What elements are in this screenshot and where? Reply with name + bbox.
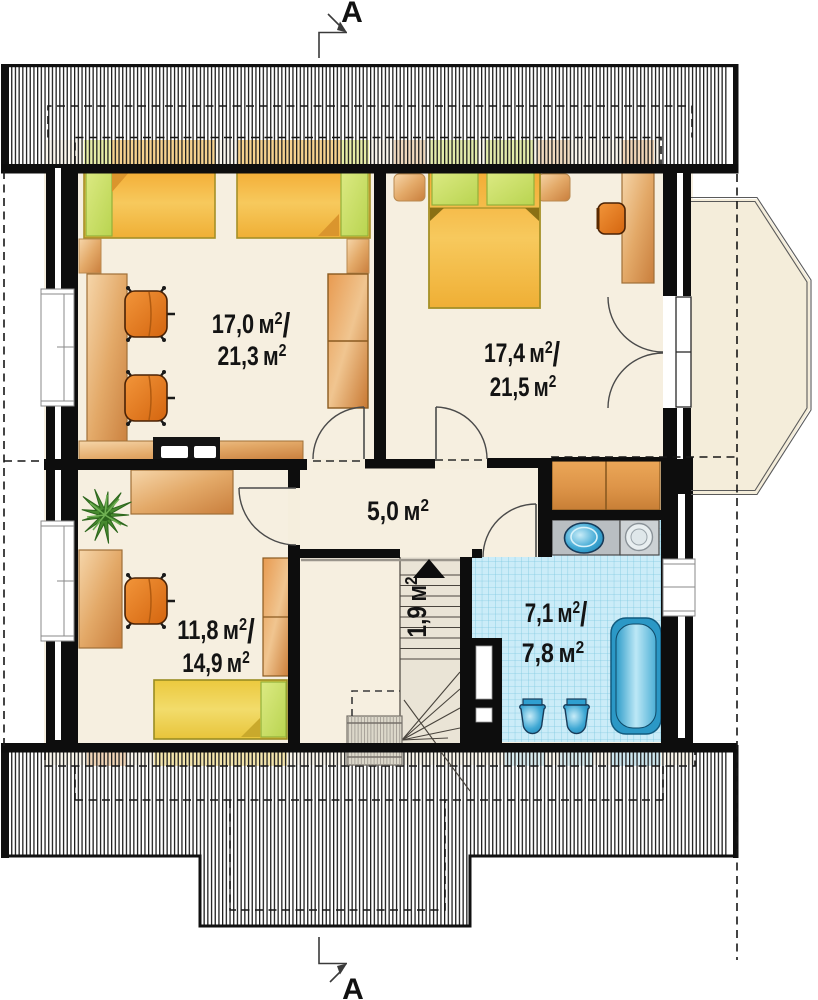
svg-text:21,3 м2: 21,3 м2 bbox=[218, 340, 287, 371]
svg-text:14,9 м2: 14,9 м2 bbox=[182, 647, 250, 678]
svg-text:A: A bbox=[342, 973, 364, 1000]
svg-text:21,5 м2: 21,5 м2 bbox=[490, 372, 557, 402]
svg-text:1,9 м2: 1,9 м2 bbox=[401, 576, 433, 637]
svg-text:A: A bbox=[341, 0, 363, 29]
svg-text:7,8 м2: 7,8 м2 bbox=[522, 637, 584, 669]
svg-text:5,0 м2: 5,0 м2 bbox=[367, 495, 429, 527]
